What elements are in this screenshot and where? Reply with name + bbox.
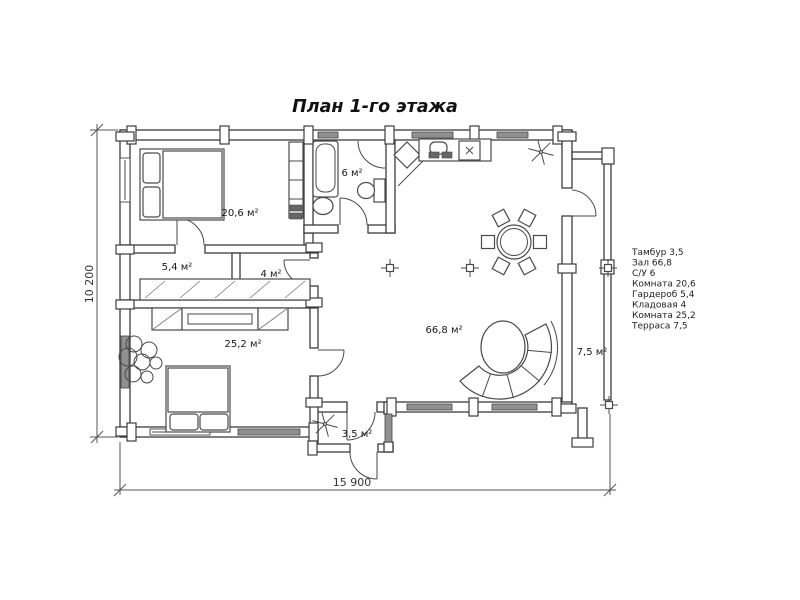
chair-icon <box>492 257 510 275</box>
chair-icon <box>534 236 547 249</box>
dimension-vertical: 10 200 <box>83 124 118 443</box>
bathtub-icon <box>313 141 338 197</box>
chair-icon <box>482 236 495 249</box>
door-arc <box>572 190 596 216</box>
room-label-bedroom2: 25,2 м² <box>225 339 262 350</box>
dimension-width-label: 15 900 <box>333 476 372 489</box>
window <box>238 429 300 435</box>
axis-marker-icon <box>381 259 399 277</box>
room-label-bathroom: 6 м² <box>341 168 362 179</box>
coffee-table-icon <box>481 321 525 373</box>
window <box>497 132 528 138</box>
axis-marker-icon <box>461 259 479 277</box>
room-label-dressing: 5,4 м² <box>162 262 193 273</box>
window <box>318 132 338 138</box>
wardrobe-icon <box>140 279 310 300</box>
floor-plan-page: 10 200 15 900 План 1-го этажа 20,6 м² 6 … <box>0 0 800 600</box>
room-label-storage: 4 м² <box>260 269 281 280</box>
kitchen-counter-icon <box>419 139 491 161</box>
door-arc <box>318 350 344 376</box>
legend-item: Кладовая 4 <box>632 301 686 311</box>
legend-item: С/У 6 <box>632 269 656 279</box>
door-arc <box>177 218 204 245</box>
legend-item: Терраса 7,5 <box>631 322 688 332</box>
legend-item: Комната 20,6 <box>632 280 696 290</box>
chair-icon <box>518 209 536 227</box>
chair-icon <box>492 209 510 227</box>
light-icon <box>528 139 553 164</box>
room-label-hall: 66,8 м² <box>426 325 463 336</box>
sink-icon <box>313 198 333 215</box>
floor-plan-drawing: 10 200 15 900 План 1-го этажа 20,6 м² 6 … <box>0 0 800 600</box>
dimension-height-label: 10 200 <box>83 265 96 304</box>
shower-door-icon <box>358 141 385 168</box>
bed-icon <box>166 366 230 432</box>
room-label-terrace: 7,5 м² <box>577 347 608 358</box>
window <box>412 132 453 138</box>
wardrobe-icon <box>152 308 288 330</box>
shelf-icon <box>289 142 303 219</box>
door-arc <box>340 198 367 225</box>
toilet-icon <box>358 179 386 202</box>
furniture <box>119 139 558 432</box>
window <box>385 414 392 442</box>
page-title: План 1-го этажа <box>292 97 458 117</box>
room-label-vestibule: 3,5 м² <box>342 429 373 440</box>
axis-marker-icon <box>600 396 618 414</box>
legend: Тамбур 3,5 Зал 66,8 С/У 6 Комната 20,6 Г… <box>631 248 696 332</box>
door-arc <box>350 452 377 479</box>
room-label-bedroom1: 20,6 м² <box>222 208 259 219</box>
legend-item: Комната 25,2 <box>632 311 696 321</box>
legend-item: Гардероб 5,4 <box>632 290 695 300</box>
window <box>492 404 537 410</box>
chair-icon <box>518 257 536 275</box>
legend-item: Зал 66,8 <box>632 259 672 269</box>
bed-icon <box>140 149 224 220</box>
stove-icon <box>459 141 480 160</box>
dining-table-icon <box>482 209 547 275</box>
window <box>407 404 452 410</box>
legend-item: Тамбур 3,5 <box>631 248 684 258</box>
